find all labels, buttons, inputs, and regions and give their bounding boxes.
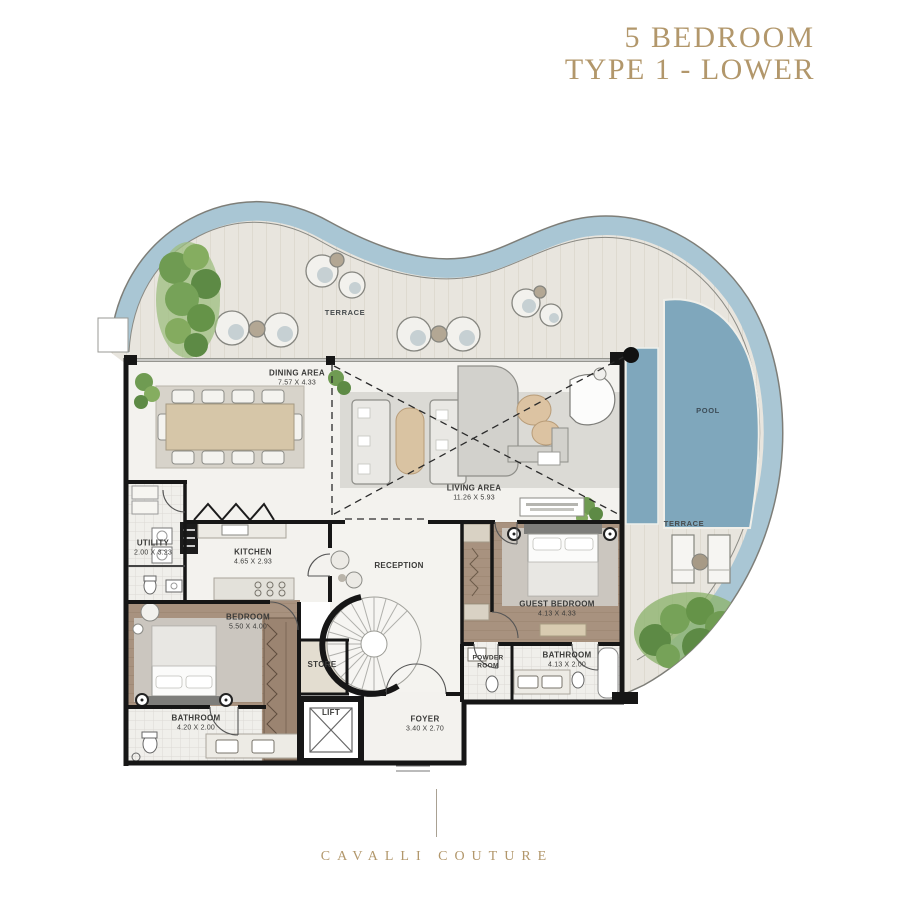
floorplan-page: 5 BEDROOM TYPE 1 - LOWER TERRACE POOL TE… (0, 0, 900, 900)
lift-name: LIFT (322, 708, 340, 718)
kitchen-island (214, 578, 294, 600)
terrace-top-name: TERRACE (325, 308, 365, 318)
toilet (486, 676, 498, 692)
reception-label: RECEPTION (374, 561, 423, 571)
master-bathroom-label: BATHROOM 4.20 X 2.00 (172, 713, 221, 732)
guest-bedroom-name: GUEST BEDROOM (519, 599, 594, 609)
living-area-name: LIVING AREA (447, 483, 502, 493)
plan-title-line2: TYPE 1 - LOWER (545, 54, 815, 86)
reference-dot (623, 347, 639, 363)
coffee-table (396, 408, 424, 474)
side-table (538, 452, 560, 465)
bedroom-name: BEDROOM (226, 612, 270, 622)
basin (542, 676, 562, 688)
basin (166, 580, 182, 592)
powder-room-line2: ROOM (477, 663, 498, 671)
footer-divider-line (436, 789, 437, 837)
foyer-name: FOYER (410, 714, 439, 724)
guest-bedroom-label: GUEST BEDROOM 4.13 X 4.33 (519, 599, 594, 618)
sun-lounger (708, 535, 730, 583)
basin (518, 676, 538, 688)
pool-label: POOL (696, 406, 720, 416)
annotation-box (520, 498, 584, 516)
side-table (692, 554, 708, 570)
terrace-right-name: TERRACE (664, 519, 704, 529)
utility-name: UTILITY (137, 538, 169, 548)
dining-table (166, 404, 294, 450)
sun-lounger (672, 535, 694, 583)
guest-bathroom-name: BATHROOM (543, 650, 592, 660)
lift-label: LIFT (322, 708, 340, 718)
headboard (148, 696, 220, 705)
terrace-top-label: TERRACE (325, 308, 365, 318)
store-label: STORE (308, 660, 337, 670)
living-area-label: LIVING AREA 11.26 X 5.93 (447, 483, 502, 502)
bedroom-dims: 5.50 X 4.00 (229, 623, 267, 632)
brand-name: CAVALLI COUTURE (237, 849, 637, 865)
plan-title: 5 BEDROOM TYPE 1 - LOWER (545, 22, 815, 85)
bathtub (598, 648, 618, 698)
basin (252, 740, 274, 753)
store-name: STORE (308, 660, 337, 670)
reception-name: RECEPTION (374, 561, 423, 571)
pool-name: POOL (696, 406, 720, 416)
utility-label: UTILITY 2.00 X 3.23 (134, 538, 172, 557)
terrace-right-label: TERRACE (664, 519, 704, 529)
bedroom-label: BEDROOM 5.50 X 4.00 (226, 612, 270, 631)
living-area-dims: 11.26 X 5.93 (453, 494, 495, 503)
sink (222, 525, 248, 535)
powder-room-line1: POWDER (472, 655, 503, 663)
kitchen-name: KITCHEN (234, 547, 272, 557)
plants-bottom-right (634, 592, 750, 672)
basin (216, 740, 238, 753)
kitchen-label: KITCHEN 4.65 X 2.93 (234, 547, 272, 566)
plan-title-line1: 5 BEDROOM (545, 22, 815, 54)
foyer-label: FOYER 3.40 X 2.70 (406, 714, 444, 733)
dining-area-label: DINING AREA 7.57 X 4.33 (269, 368, 325, 387)
guest-bathroom-dims: 4.13 X 2.00 (548, 661, 586, 670)
master-bathroom-name: BATHROOM (172, 713, 221, 723)
chair (141, 603, 159, 621)
dining-area-dims: 7.57 X 4.33 (278, 379, 316, 388)
dining-area-name: DINING AREA (269, 368, 325, 378)
headboard (524, 524, 602, 534)
bench (540, 624, 586, 636)
foyer-dims: 3.40 X 2.70 (406, 725, 444, 734)
guest-bathroom-label: BATHROOM 4.13 X 2.00 (543, 650, 592, 669)
edge-notch (98, 318, 128, 352)
toilet (572, 672, 584, 688)
floor-lamp (133, 624, 143, 634)
utility-dims: 2.00 X 3.23 (134, 549, 172, 558)
guest-bedroom-dims: 4.13 X 4.33 (538, 610, 576, 619)
floorplan-canvas (0, 0, 900, 900)
kitchen-dims: 4.65 X 2.93 (234, 558, 272, 567)
master-bathroom-dims: 4.20 X 2.00 (177, 724, 215, 733)
powder-room-label: POWDER ROOM (472, 655, 503, 672)
